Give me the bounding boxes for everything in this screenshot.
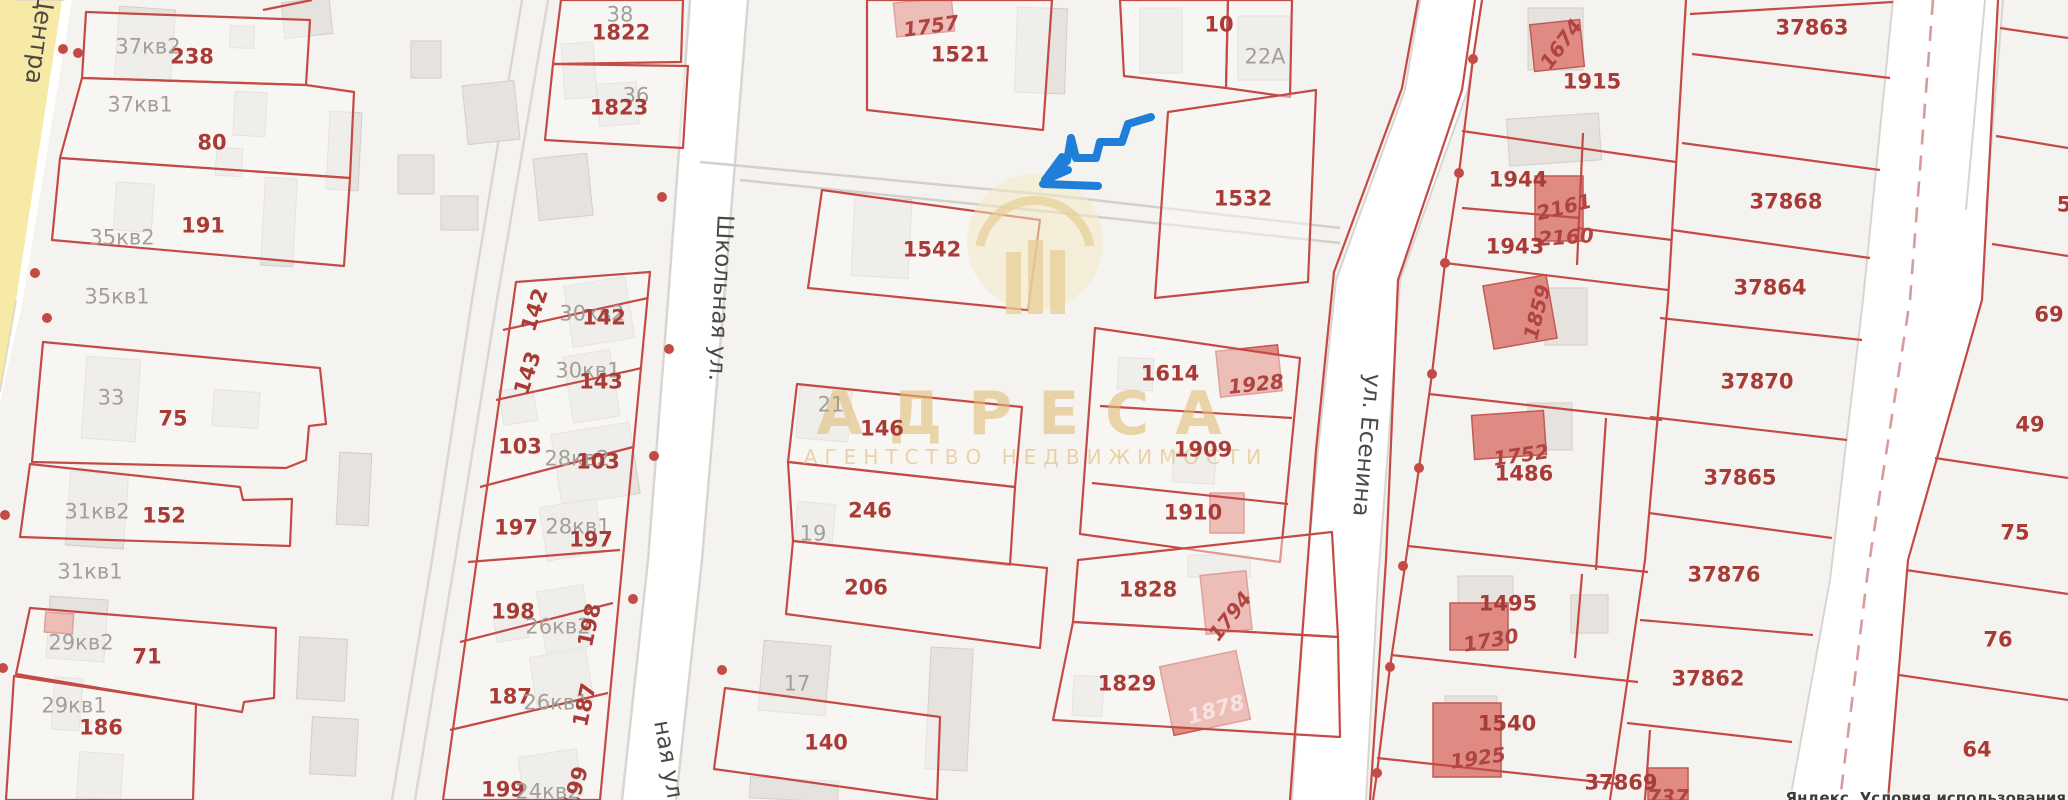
- blue-arrow-annotation: [0, 0, 2068, 800]
- map-attribution: Яндекс. Условия использования: [1786, 789, 2066, 800]
- map-canvas[interactable]: АДРЕСА АГЕНТСТВО НЕДВИЖИМОСТИ ЦентраШкол…: [0, 0, 2068, 800]
